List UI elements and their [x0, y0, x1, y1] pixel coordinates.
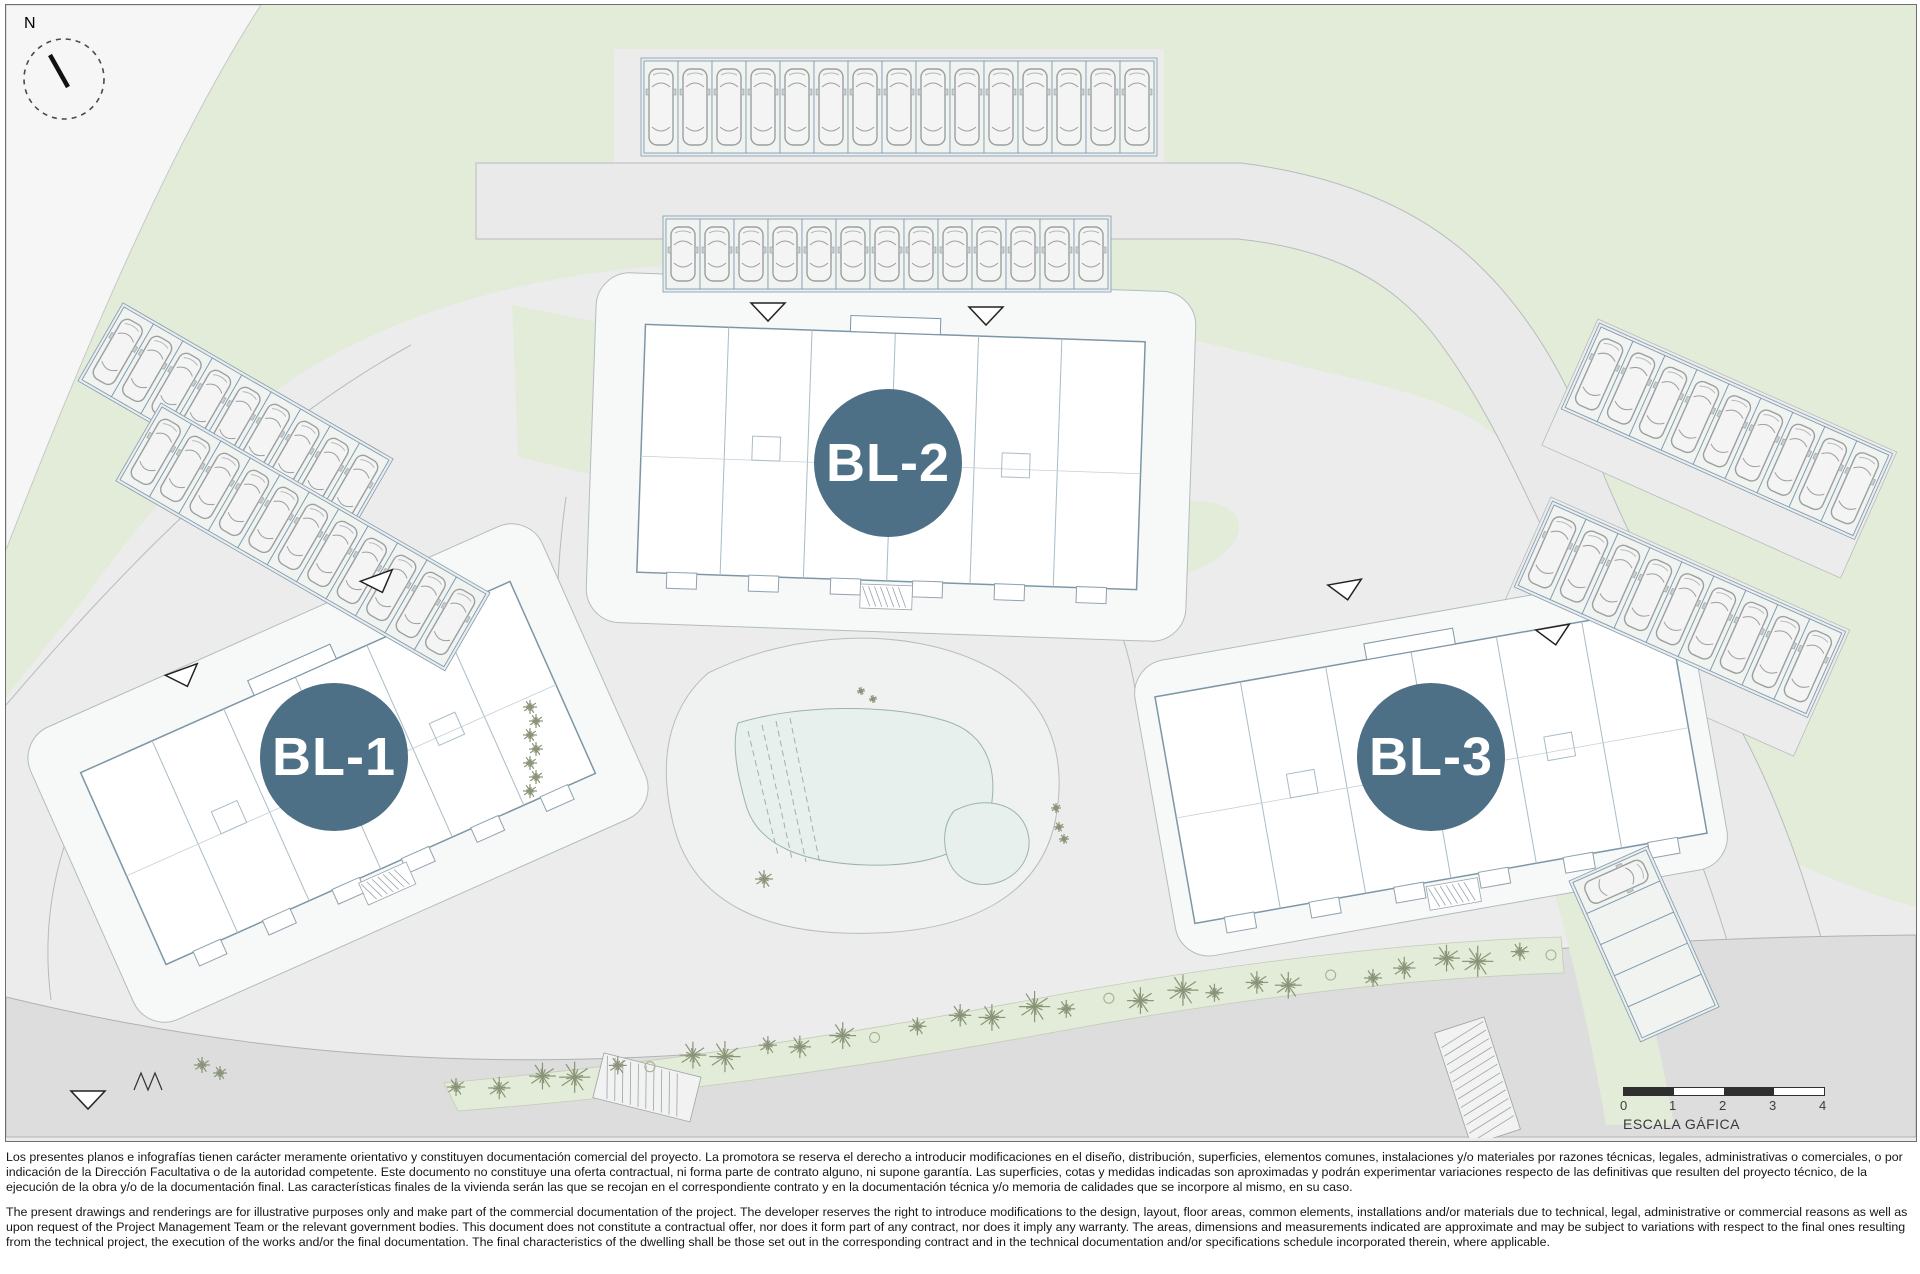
parking-stall	[666, 219, 700, 289]
car-icon	[974, 227, 1004, 281]
car-icon	[872, 227, 902, 281]
scale-tick-3: 3	[1769, 1098, 1776, 1113]
parking-row	[641, 58, 1157, 156]
parking-stall	[972, 219, 1006, 289]
scale-label: ESCALA GÁFICA	[1623, 1116, 1833, 1132]
kids-pool	[945, 803, 1029, 885]
car-icon	[680, 69, 710, 145]
compass-needle	[50, 55, 68, 87]
parking-stall	[802, 219, 836, 289]
parking-stall	[870, 219, 904, 289]
scale-bar	[1623, 1087, 1825, 1096]
balcony	[666, 572, 697, 589]
parking-stall	[700, 219, 734, 289]
car-icon	[1020, 69, 1050, 145]
parking-stall	[678, 61, 712, 153]
car-icon	[748, 69, 778, 145]
north-label: N	[24, 15, 36, 33]
car-icon	[782, 69, 812, 145]
site-plan-page: N BL-1 BL-2 BL-3 0 1 2 3 4	[0, 0, 1920, 1274]
parking-stall	[916, 61, 950, 153]
car-icon	[952, 69, 982, 145]
block-badge-bl-2: BL-2	[814, 389, 962, 537]
car-icon	[918, 69, 948, 145]
parking-stall	[882, 61, 916, 153]
parking-stall	[1074, 219, 1108, 289]
disclaimer-block: Los presentes planos e infografías tiene…	[6, 1150, 1914, 1260]
car-icon	[838, 227, 868, 281]
scale-tick-2: 2	[1719, 1098, 1726, 1113]
parking-stall	[950, 61, 984, 153]
scale-tick-4: 4	[1819, 1098, 1826, 1113]
scale-tick-1: 1	[1669, 1098, 1676, 1113]
parking-stall	[938, 219, 972, 289]
parking-stall	[984, 61, 1018, 153]
graphic-scale: 0 1 2 3 4 ESCALA GÁFICA	[1623, 1087, 1833, 1132]
stair-hatch	[860, 584, 913, 610]
parking-stall	[1018, 61, 1052, 153]
block-label-bl-1: BL-1	[272, 726, 396, 788]
parking-stall	[1052, 61, 1086, 153]
balcony	[830, 578, 861, 595]
balcony	[1076, 587, 1107, 604]
entrance-canopy	[850, 316, 941, 335]
parking-stall	[1120, 61, 1154, 153]
car-icon	[804, 227, 834, 281]
car-icon	[714, 69, 744, 145]
car-icon	[736, 227, 766, 281]
parking-stall	[746, 61, 780, 153]
parking-stall	[768, 219, 802, 289]
car-icon	[986, 69, 1016, 145]
disclaimer-english: The present drawings and renderings are …	[6, 1205, 1914, 1250]
car-icon	[906, 227, 936, 281]
car-icon	[646, 69, 676, 145]
car-icon	[1054, 69, 1084, 145]
car-icon	[702, 227, 732, 281]
parking-stall	[836, 219, 870, 289]
car-icon	[770, 227, 800, 281]
car-icon	[1008, 227, 1038, 281]
parking-stall	[1086, 61, 1120, 153]
block-label-bl-3: BL-3	[1369, 726, 1493, 788]
disclaimer-spanish: Los presentes planos e infografías tiene…	[6, 1150, 1914, 1195]
parking-stall	[734, 219, 768, 289]
car-icon	[1042, 227, 1072, 281]
balcony	[748, 575, 779, 592]
pool-area	[666, 638, 1059, 933]
scale-ticks: 0 1 2 3 4	[1623, 1098, 1833, 1114]
scale-tick-0: 0	[1620, 1098, 1627, 1113]
parking-stall	[712, 61, 746, 153]
parking-stall	[1040, 219, 1074, 289]
block-label-bl-2: BL-2	[826, 432, 950, 494]
parking-stall	[780, 61, 814, 153]
parking-row	[663, 216, 1111, 292]
parking-stall	[814, 61, 848, 153]
block-badge-bl-1: BL-1	[260, 683, 408, 831]
car-icon	[668, 227, 698, 281]
balcony	[912, 581, 943, 598]
balcony	[994, 584, 1025, 601]
parking-stall	[644, 61, 678, 153]
car-icon	[1122, 69, 1152, 145]
parking-stall	[848, 61, 882, 153]
parking-stall	[1006, 219, 1040, 289]
car-icon	[1076, 227, 1106, 281]
site-plan-drawing	[6, 5, 1916, 1138]
block-badge-bl-3: BL-3	[1357, 683, 1505, 831]
site-plan-canvas: N BL-1 BL-2 BL-3 0 1 2 3 4	[5, 4, 1917, 1142]
car-icon	[850, 69, 880, 145]
car-icon	[940, 227, 970, 281]
car-icon	[1088, 69, 1118, 145]
parking-stall	[904, 219, 938, 289]
car-icon	[816, 69, 846, 145]
car-icon	[884, 69, 914, 145]
